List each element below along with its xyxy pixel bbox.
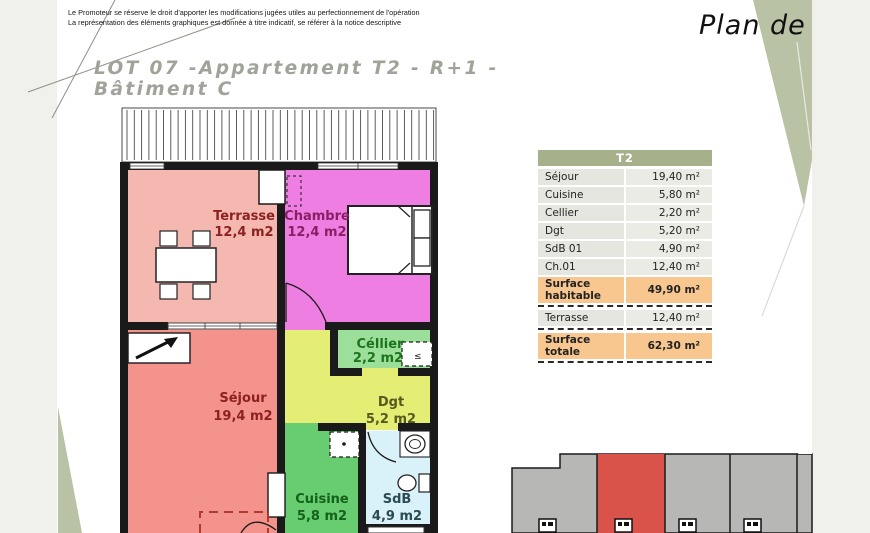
sejour-area: 19,4 m2 bbox=[213, 409, 272, 424]
table-row: Surface habitable49,90 m² bbox=[538, 277, 712, 303]
terrasse-area: 12,4 m2 bbox=[214, 225, 273, 240]
table-row: Dgt5,20 m² bbox=[538, 223, 712, 239]
disclaimer-line-1: Le Promoteur se réserve le droit d'appor… bbox=[68, 8, 498, 18]
sage-wedge-bottom-left bbox=[58, 407, 82, 533]
row-label: Terrasse bbox=[538, 310, 624, 326]
row-label: Ch.01 bbox=[538, 259, 624, 275]
table-row: Séjour19,40 m² bbox=[538, 169, 712, 185]
svg-text:≤: ≤ bbox=[414, 352, 422, 362]
bed-icon bbox=[348, 206, 432, 274]
row-value: 5,80 m² bbox=[626, 187, 712, 203]
table-row: SdB 014,90 m² bbox=[538, 241, 712, 257]
dashed-separator bbox=[538, 361, 712, 363]
cellier-area: 2,2 m2 bbox=[353, 351, 403, 366]
closet-recess bbox=[259, 170, 285, 204]
surface-table-rows: Séjour19,40 m²Cuisine5,80 m²Cellier2,20 … bbox=[538, 169, 712, 363]
chambre-label: Chambre bbox=[284, 209, 350, 224]
floor-plan: ≤ Terrasse 12,4 m2 Chambre 12,4 m2 Séjou… bbox=[118, 98, 445, 533]
sdb-area: 4,9 m2 bbox=[372, 509, 422, 524]
cellier-label: Céllier bbox=[357, 337, 405, 352]
hatch-band bbox=[122, 108, 436, 162]
row-value: 12,40 m² bbox=[626, 310, 712, 326]
dgt-label: Dgt bbox=[378, 395, 404, 410]
row-label: Surface habitable bbox=[538, 277, 624, 303]
table-row: Surface totale62,30 m² bbox=[538, 333, 712, 359]
row-label: Séjour bbox=[538, 169, 624, 185]
table-row: Terrasse12,40 m² bbox=[538, 310, 712, 326]
row-value: 2,20 m² bbox=[626, 205, 712, 221]
left-margin-strip bbox=[0, 0, 57, 533]
sink-icon bbox=[400, 431, 430, 457]
row-value: 19,40 m² bbox=[626, 169, 712, 185]
row-value: 4,90 m² bbox=[626, 241, 712, 257]
table-row: Cuisine5,80 m² bbox=[538, 187, 712, 203]
page-title: LOT 07 -Appartement T2 - R+1 - Bâtiment … bbox=[94, 58, 574, 100]
row-value: 12,40 m² bbox=[626, 259, 712, 275]
row-label: Cuisine bbox=[538, 187, 624, 203]
wedge-highlight-line bbox=[797, 42, 811, 150]
right-margin-strip bbox=[812, 0, 870, 533]
row-label: SdB 01 bbox=[538, 241, 624, 257]
disclaimer-line-2: La représentation des éléments graphique… bbox=[68, 18, 498, 28]
disclaimer-text: Le Promoteur se réserve le droit d'appor… bbox=[68, 8, 498, 28]
surface-table-header: T2 bbox=[538, 150, 712, 166]
wedge-tail-line bbox=[762, 206, 804, 316]
dashed-separator bbox=[538, 305, 712, 307]
plan-de-label: Plan de bbox=[699, 10, 806, 41]
cuisine-area: 5,8 m2 bbox=[297, 509, 347, 524]
washer-box bbox=[368, 527, 424, 533]
sdb-label: SdB bbox=[383, 492, 412, 507]
chambre-area: 12,4 m2 bbox=[287, 225, 346, 240]
row-value: 62,30 m² bbox=[626, 333, 712, 359]
table-row: Ch.0112,40 m² bbox=[538, 259, 712, 275]
row-label: Surface totale bbox=[538, 333, 624, 359]
terrasse-label: Terrasse bbox=[213, 209, 275, 224]
dashed-separator bbox=[538, 328, 712, 330]
door-sejour-cuisine bbox=[268, 473, 285, 517]
corner-white-sliver bbox=[798, 434, 812, 454]
sejour-label: Séjour bbox=[219, 391, 267, 406]
entrance-arrow-icon bbox=[128, 333, 190, 363]
row-label: Dgt bbox=[538, 223, 624, 239]
row-value: 5,20 m² bbox=[626, 223, 712, 239]
table-row: Cellier2,20 m² bbox=[538, 205, 712, 221]
surface-table: T2 Séjour19,40 m²Cuisine5,80 m²Cellier2,… bbox=[538, 150, 712, 366]
row-value: 49,90 m² bbox=[626, 277, 712, 303]
cuisine-label: Cuisine bbox=[295, 492, 349, 507]
row-label: Cellier bbox=[538, 205, 624, 221]
plan-sheet: Le Promoteur se réserve le droit d'appor… bbox=[0, 0, 870, 533]
dgt-area: 5,2 m2 bbox=[366, 412, 416, 427]
building-key-plan bbox=[505, 428, 815, 533]
